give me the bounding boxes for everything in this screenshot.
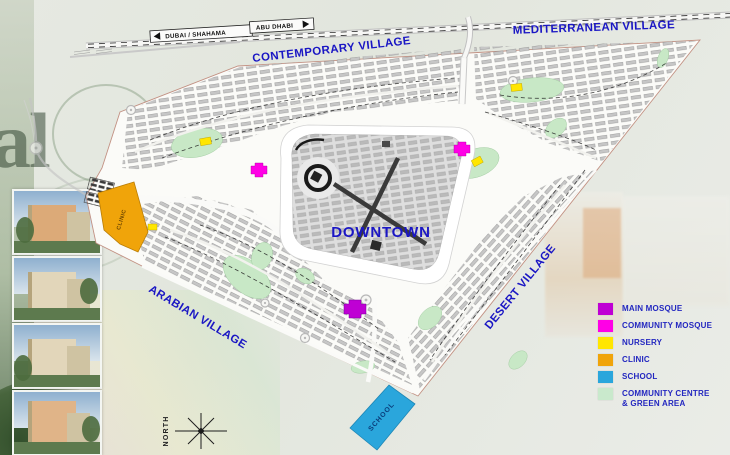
legend-label: COMMUNITY MOSQUE: [622, 320, 712, 331]
legend-item-community-mosque: COMMUNITY MOSQUE: [598, 320, 730, 332]
downtown-label: DOWNTOWN: [331, 224, 430, 241]
legend-label: MAIN MOSQUE: [622, 303, 682, 314]
legend-item-nursery: NURSERY: [598, 337, 730, 349]
legend-label: COMMUNITY CENTRE & GREEN AREA: [622, 388, 710, 408]
school-swatch: [598, 371, 613, 383]
legend-item-community-centre: COMMUNITY CENTRE & GREEN AREA: [598, 388, 730, 408]
access-road: [24, 98, 88, 196]
legend-label: NURSERY: [622, 337, 662, 348]
compass: NORTH: [163, 413, 227, 449]
legend-item-school: SCHOOL: [598, 371, 730, 383]
legend-item-clinic: CLINIC: [598, 354, 730, 366]
community-mosque-swatch: [598, 320, 613, 332]
legend-item-main-mosque: MAIN MOSQUE: [598, 303, 730, 315]
clinic-swatch: [598, 354, 613, 366]
downtown-area: [280, 125, 475, 284]
legend: MAIN MOSQUE COMMUNITY MOSQUE NURSERY CLI…: [598, 303, 730, 413]
nursery-swatch: [598, 337, 613, 349]
legend-label: SCHOOL: [622, 371, 657, 382]
main-mosque-swatch: [598, 303, 613, 315]
legend-label: CLINIC: [622, 354, 650, 365]
community-centre-swatch: [598, 388, 613, 400]
school-area: SCHOOL: [350, 385, 415, 450]
masterplan-page: al: [0, 0, 730, 455]
compass-north-label: NORTH: [163, 416, 170, 447]
